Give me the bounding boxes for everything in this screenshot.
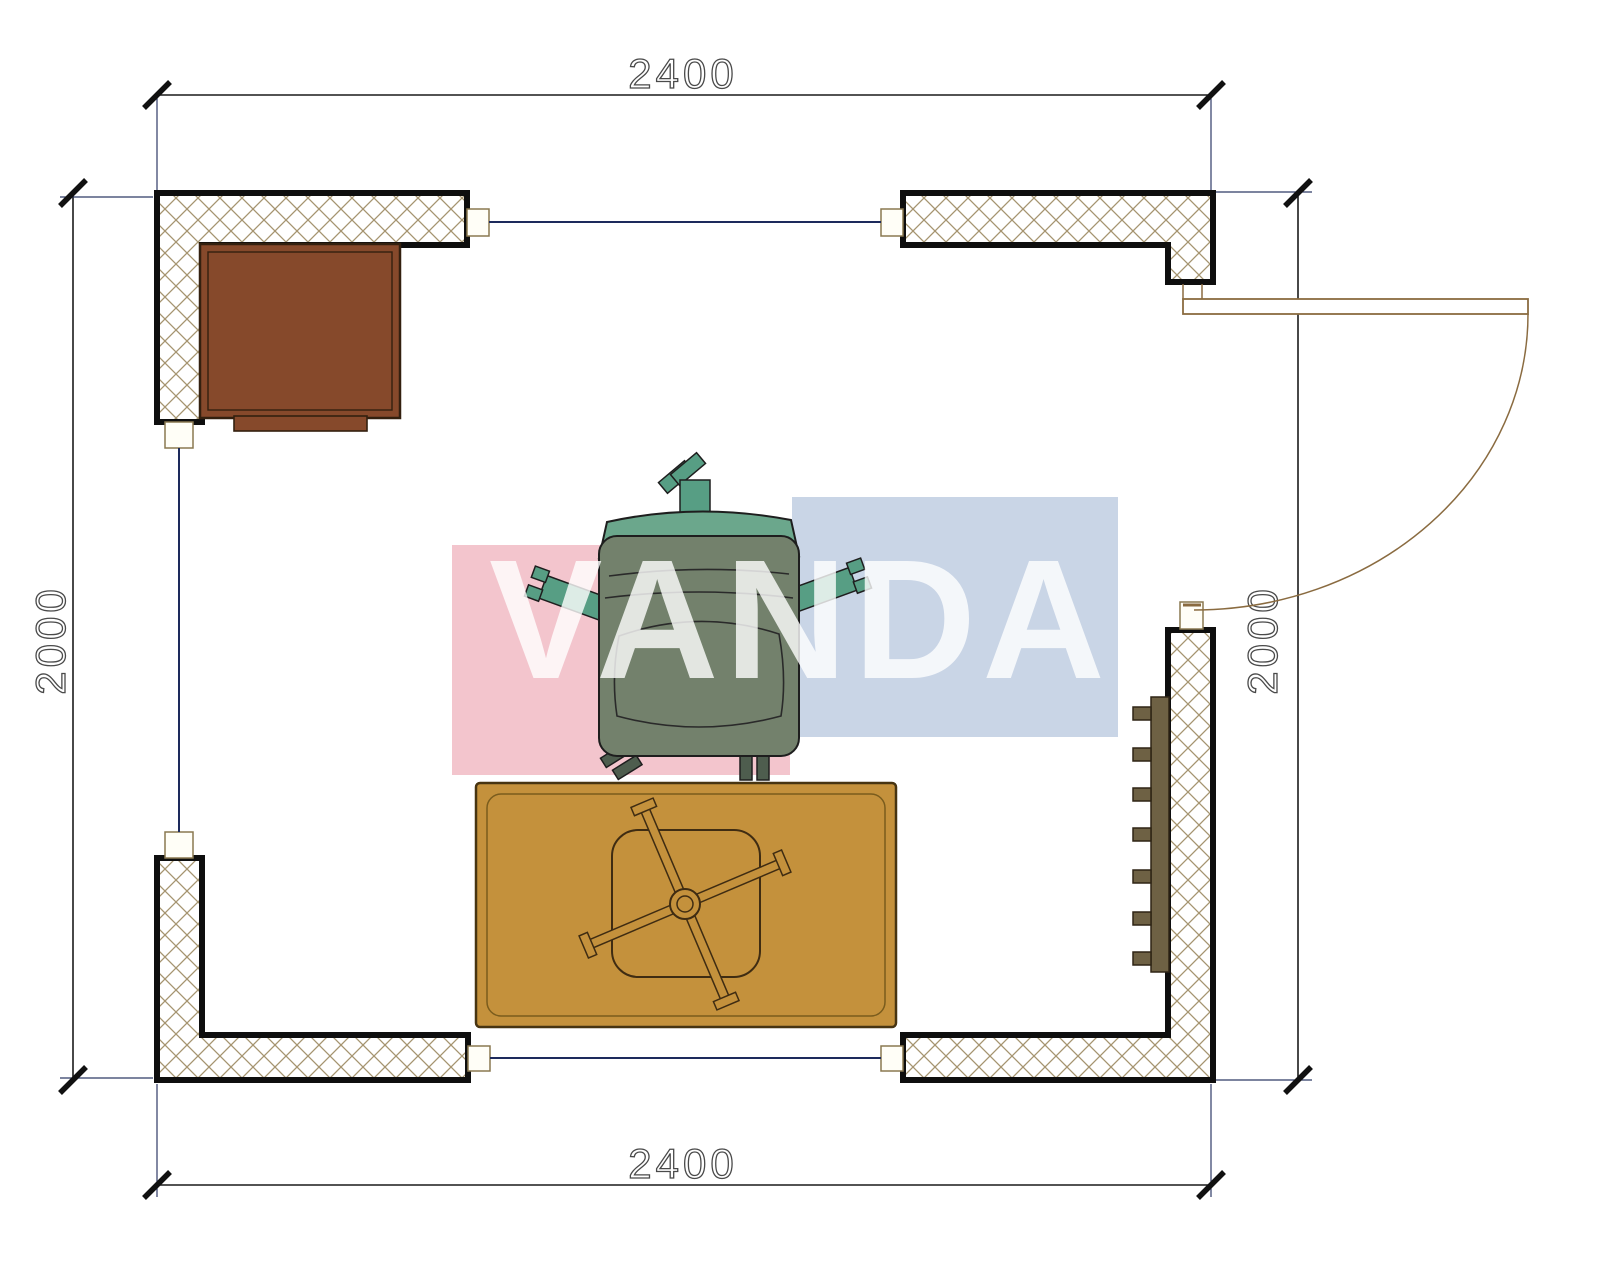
wall-top-right bbox=[903, 193, 1213, 282]
dimension-label-left: 2000 bbox=[27, 585, 74, 694]
armchair-foot bbox=[740, 754, 752, 780]
radiator-fin bbox=[1133, 788, 1151, 801]
dimension-bottom: 2400 bbox=[144, 1084, 1224, 1198]
armchair-foot bbox=[757, 754, 769, 780]
floor-plan-svg: 2400 2400 2000 2000 bbox=[0, 0, 1600, 1280]
cabinet-body bbox=[200, 244, 400, 418]
floor-plan-canvas: 2400 2400 2000 2000 bbox=[0, 0, 1600, 1280]
radiator-bar bbox=[1151, 697, 1169, 972]
radiator-fin bbox=[1133, 707, 1151, 720]
radiator bbox=[1133, 697, 1169, 972]
radiator-fin bbox=[1133, 870, 1151, 883]
radiator-fin bbox=[1133, 748, 1151, 761]
wall-cap bbox=[881, 209, 903, 236]
armchair-headrest bbox=[658, 453, 710, 518]
door bbox=[1183, 284, 1528, 610]
wall-cap bbox=[881, 1046, 903, 1071]
dimension-left: 2000 bbox=[27, 180, 153, 1093]
radiator-fin bbox=[1133, 952, 1151, 965]
radiator-fin bbox=[1133, 912, 1151, 925]
dimension-right: 2000 bbox=[1216, 180, 1312, 1093]
radiator-fin bbox=[1133, 828, 1151, 841]
door-leaf bbox=[1183, 299, 1528, 314]
wall-cap bbox=[467, 209, 489, 236]
wall-bottom-left bbox=[157, 858, 468, 1080]
cabinet bbox=[200, 244, 400, 431]
cabinet-drawer-tab bbox=[234, 416, 367, 431]
dimension-label-top: 2400 bbox=[628, 50, 737, 97]
door-arc bbox=[1194, 314, 1528, 610]
wall-cap bbox=[165, 422, 193, 448]
dimension-label-right: 2000 bbox=[1239, 585, 1286, 694]
table-leg-hub bbox=[670, 889, 700, 919]
dimension-top: 2400 bbox=[144, 50, 1224, 190]
wall-cap bbox=[165, 832, 193, 858]
watermark-text: VANDA bbox=[489, 525, 1111, 715]
wall-cap bbox=[468, 1046, 490, 1071]
dimension-label-bottom: 2400 bbox=[628, 1140, 737, 1187]
